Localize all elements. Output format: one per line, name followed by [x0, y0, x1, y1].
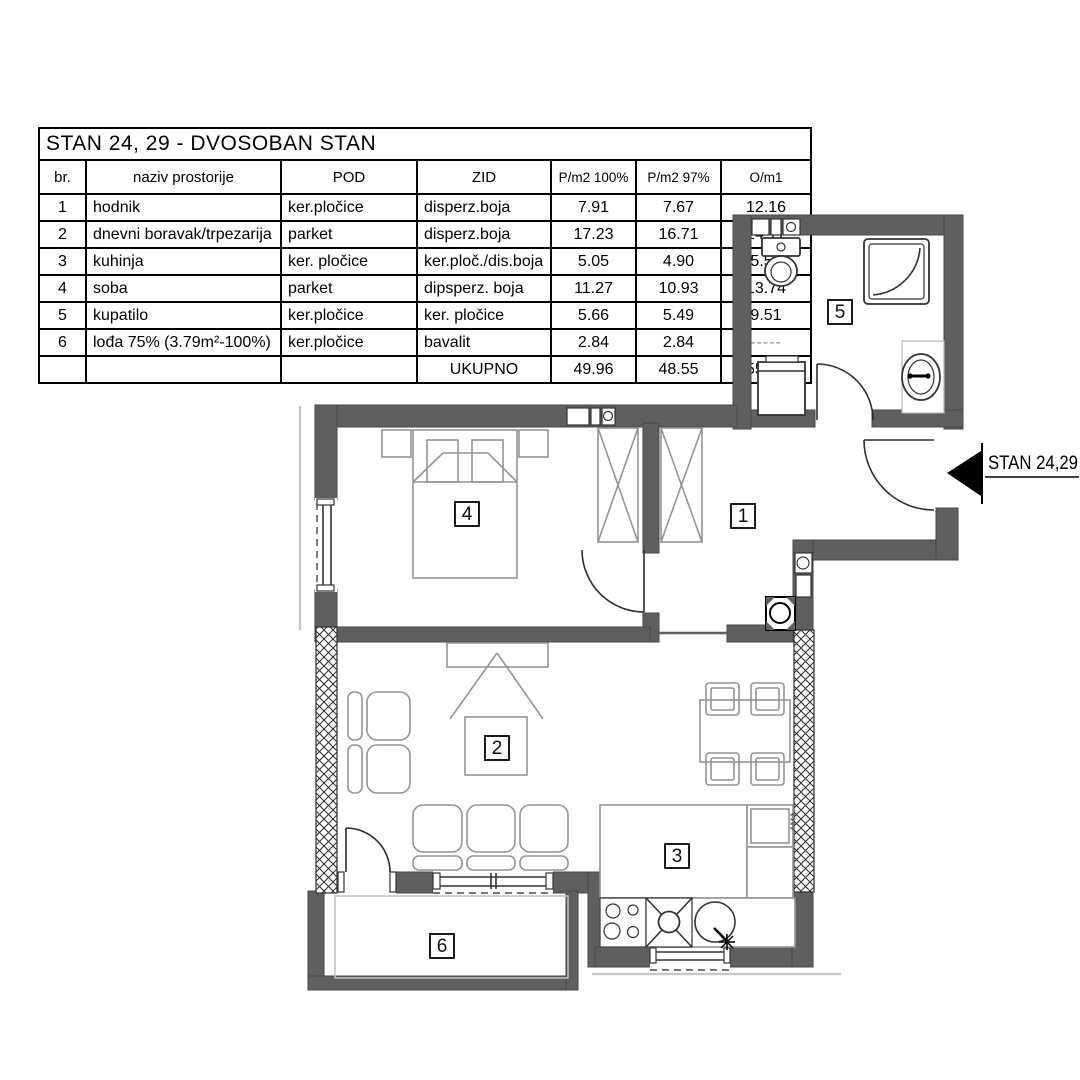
bedroom-window [315, 498, 337, 592]
armchairs [348, 692, 410, 793]
nightstand-right [519, 430, 548, 457]
entrance-label: STAN 24,29 [988, 453, 1078, 474]
svg-text:3: 3 [672, 846, 683, 867]
hall-wall-boxes [795, 553, 812, 597]
dining-set [700, 683, 790, 785]
wardrobe-hall [661, 428, 702, 542]
hatched-wall-right [794, 630, 814, 892]
room-label-6: 6 [430, 934, 454, 958]
vent-shaft-bathroom-wall [752, 219, 800, 235]
room-label-1: 1 [731, 504, 755, 528]
washing-machine [758, 356, 805, 415]
dining-chairs [706, 683, 784, 785]
floor-plan-drawing: **** [0, 0, 1080, 1080]
svg-text:6: 6 [437, 936, 448, 957]
shower [864, 239, 929, 304]
svg-text:1: 1 [738, 506, 749, 527]
room-label-5: 5 [828, 300, 852, 324]
bathroom-door [817, 364, 873, 420]
entrance-door [864, 440, 934, 510]
installation-shaft [766, 597, 795, 630]
room-label-3: 3 [665, 844, 689, 868]
toilet [762, 238, 800, 286]
kitchen-window [650, 945, 730, 970]
svg-text:2: 2 [492, 738, 503, 759]
balcony-door [338, 828, 396, 894]
entrance-marker: STAN 24,29 [947, 443, 1079, 504]
kitchen-cabinet [747, 847, 793, 898]
sofa [413, 805, 568, 870]
svg-text:4: 4 [462, 504, 473, 525]
bathroom-sink [902, 341, 944, 413]
freezer-stars: **** [785, 813, 795, 831]
tv-view-lines [450, 653, 543, 719]
hatched-wall-left [316, 627, 337, 893]
room-label-4: 4 [455, 502, 479, 526]
kitchen-sink [646, 898, 692, 947]
wardrobe-bedroom [598, 428, 638, 542]
floor-plan-page: STAN 24, 29 - DVOSOBAN STAN br. naziv pr… [0, 0, 1080, 1080]
room-label-2: 2 [485, 736, 509, 760]
svg-text:5: 5 [835, 302, 846, 323]
entrance-arrow-icon [947, 451, 981, 496]
living-room-window [433, 871, 553, 893]
vent-shaft-bedroom-wall [567, 408, 615, 425]
stove [600, 898, 646, 947]
nightstand-left [382, 430, 411, 457]
bedroom-door [582, 550, 644, 612]
